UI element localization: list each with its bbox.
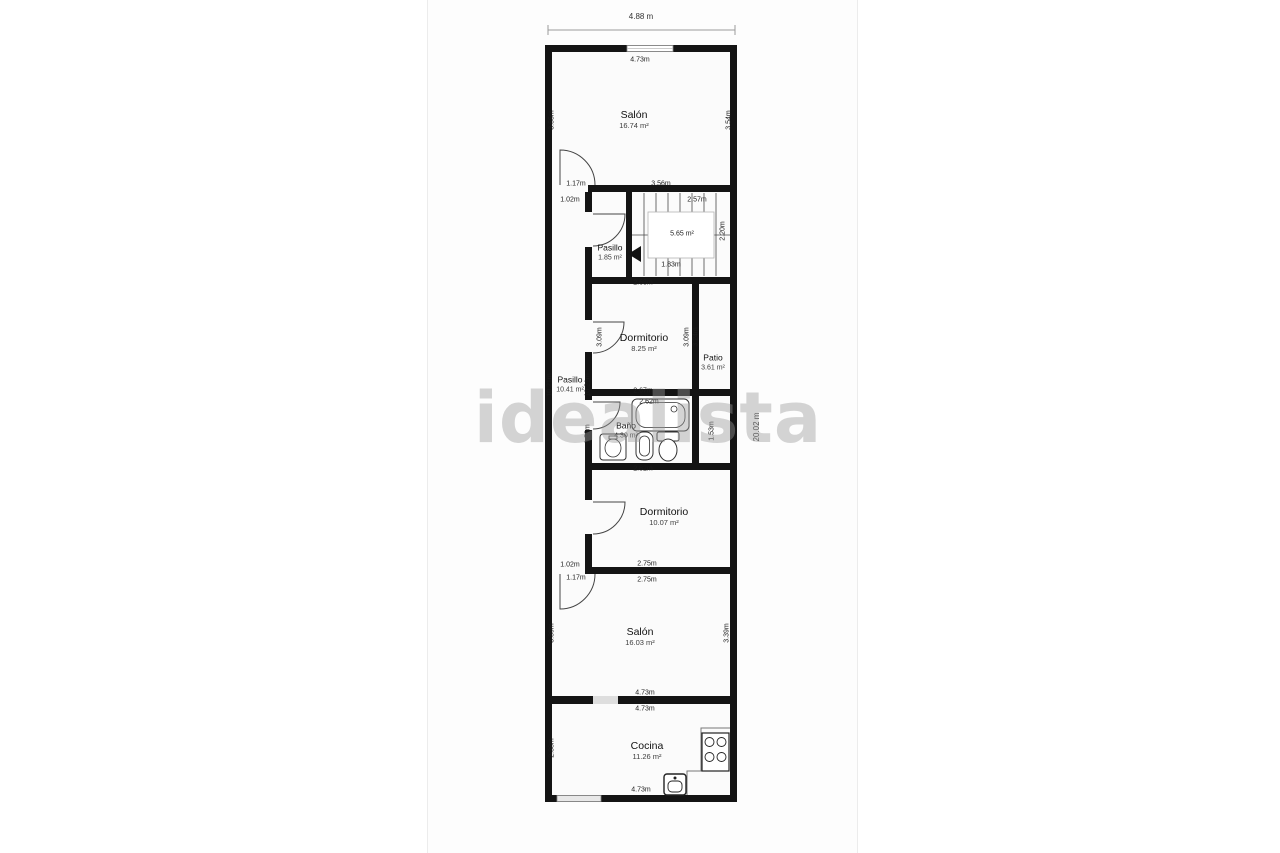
dim-salon2-door: 1.17m xyxy=(566,575,585,582)
dim-stairs-right: 2.20m xyxy=(720,221,727,240)
dim-dorm1-right: 3.09m xyxy=(684,327,691,346)
dim-salon2-top: 2.75m xyxy=(637,577,656,584)
room-area: 10.41 m² xyxy=(556,386,584,394)
room-label-salon1: Salón 16.74 m² xyxy=(619,109,649,131)
room-label-dormitorio2: Dormitorio 10.07 m² xyxy=(640,506,688,528)
room-label-patio: Patio 3.61 m² xyxy=(701,354,725,373)
dim-dorm1-bottom: 2.67m xyxy=(633,388,652,395)
dim-overall-width: 4.88 m xyxy=(629,13,653,21)
dim-dorm2-bottom: 2.75m xyxy=(637,561,656,568)
dim-salon1-door: 1.17m xyxy=(566,181,585,188)
dim-dorm1-left: 3.09m xyxy=(597,327,604,346)
sink-icon xyxy=(664,774,686,795)
dim-salon1-bottom: 3.56m xyxy=(651,181,670,188)
dim-salon2-bottom: 4.73m xyxy=(635,690,654,697)
dim-corridor-right: 10.21m xyxy=(585,373,592,396)
room-label-pasillo: Pasillo 1.85 m² xyxy=(597,244,622,263)
stove-icon xyxy=(702,733,729,771)
dim-corridor-left: 10.21m xyxy=(547,373,554,396)
dim-dorm2-top: 2.82m xyxy=(633,466,652,473)
room-area: 16.03 m² xyxy=(625,639,655,648)
bidet-icon xyxy=(636,432,653,460)
room-name: Pasillo xyxy=(556,376,584,386)
window-icon xyxy=(627,46,673,52)
dim-dorm1-top: 2.68m xyxy=(633,280,652,287)
room-area: 11.26 m² xyxy=(631,753,664,762)
room-name: Pasillo xyxy=(597,244,622,254)
room-area: 4.30 m² xyxy=(614,432,638,440)
room-area: 3.61 m² xyxy=(701,364,725,372)
room-label-bano: Baño 4.30 m² xyxy=(614,422,638,441)
dim-cocina-left: 2.38m xyxy=(549,738,556,757)
dim-salon1-left: 3.55m xyxy=(549,110,556,129)
dim-patio-left: 3.24m xyxy=(693,327,700,346)
room-area: 1.85 m² xyxy=(597,254,622,262)
dim-stairs-bottom: 1.83m xyxy=(661,262,680,269)
room-label-cocina: Cocina 11.26 m² xyxy=(631,740,664,762)
stairs-area-label: 5.65 m² xyxy=(670,231,694,238)
room-name: Salón xyxy=(619,109,649,121)
wall-opening xyxy=(593,696,618,704)
dim-overall-height: 20.02 m xyxy=(753,413,761,442)
dim-bano-top: 2.62m xyxy=(639,399,658,406)
floor-plan-page: 4.88 m 20.02 m Salón 16.74 m² 4.73m 3.55… xyxy=(0,0,1280,853)
dim-salon2-left: 3.39m xyxy=(549,623,556,642)
toilet-icon xyxy=(657,432,679,461)
dim-cocina-bottom: 4.73m xyxy=(631,787,650,794)
room-label-salon2: Salón 16.03 m² xyxy=(625,626,655,648)
room-name: Baño xyxy=(614,422,638,432)
room-area: 16.74 m² xyxy=(619,122,649,131)
room-name: Cocina xyxy=(631,740,664,752)
room-label-dormitorio1: Dormitorio 8.25 m² xyxy=(620,332,668,354)
room-area: 10.07 m² xyxy=(640,519,688,528)
room-name: Dormitorio xyxy=(620,332,668,344)
room-name: Salón xyxy=(625,626,655,638)
room-name: Dormitorio xyxy=(640,506,688,518)
window-icon xyxy=(557,796,601,802)
dim-salon1-right: 3.54m xyxy=(726,110,733,129)
dim-stairs-top: 2.57m xyxy=(687,197,706,204)
dim-bano-right: 1.53m xyxy=(709,421,716,440)
room-name: Patio xyxy=(701,354,725,364)
dim-corridor-bottom: 1.02m xyxy=(560,562,579,569)
dimension-line-top xyxy=(548,25,735,35)
room-label-corridor: Pasillo 10.41 m² xyxy=(556,376,584,395)
dim-cocina-top: 4.73m xyxy=(635,706,654,713)
dim-salon1-top: 4.73m xyxy=(630,57,649,64)
dim-salon2-right: 3.39m xyxy=(724,623,731,642)
room-area: 8.25 m² xyxy=(620,345,668,354)
dim-bano-left: 1.53m xyxy=(585,424,592,443)
dim-corridor-top: 1.02m xyxy=(560,197,579,204)
